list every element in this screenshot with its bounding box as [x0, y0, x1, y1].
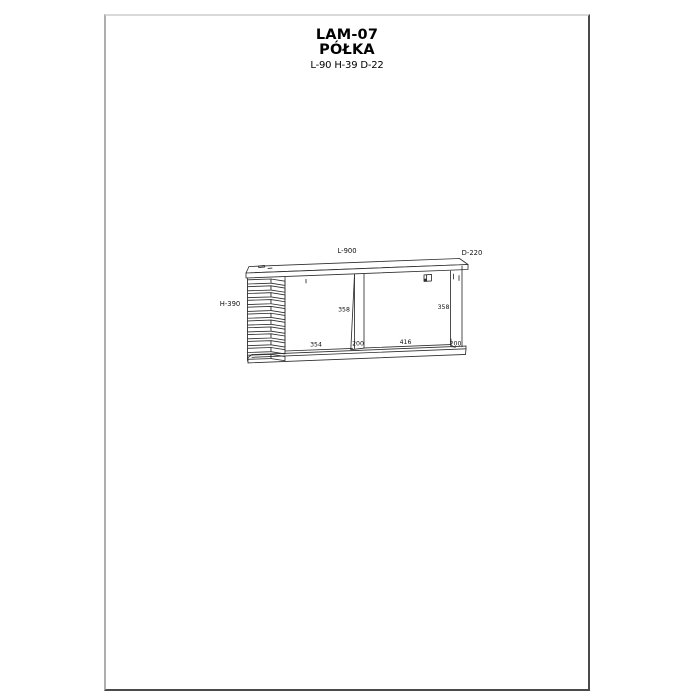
- right-side-panel: [451, 266, 463, 347]
- middle-divider: [351, 274, 366, 350]
- dim-length-label: L-900: [337, 247, 356, 255]
- dim-left-section-width: 354: [310, 342, 322, 349]
- dim-divider-depth: 200: [352, 341, 364, 348]
- document-page: LAM-07 PÓŁKA L-90 H-39 D-22: [104, 14, 590, 691]
- dim-right-section-height: 358: [438, 304, 450, 311]
- dim-side-panel-depth: 200: [450, 341, 462, 348]
- screenshot-canvas: LAM-07 PÓŁKA L-90 H-39 D-22: [0, 0, 700, 700]
- slat-stack: [248, 278, 286, 361]
- dim-right-section-width: 416: [400, 339, 412, 346]
- dim-left-section-height: 358: [338, 307, 350, 314]
- top-panel: [246, 259, 468, 279]
- technical-drawing: L-900 D-220 H-390 358 358 354 200 416 20…: [2, 2, 700, 700]
- dim-depth-label: D-220: [462, 249, 483, 257]
- dim-height-label: H-390: [220, 300, 241, 308]
- hanging-bracket: [424, 274, 432, 281]
- carcass-interior: [285, 266, 462, 351]
